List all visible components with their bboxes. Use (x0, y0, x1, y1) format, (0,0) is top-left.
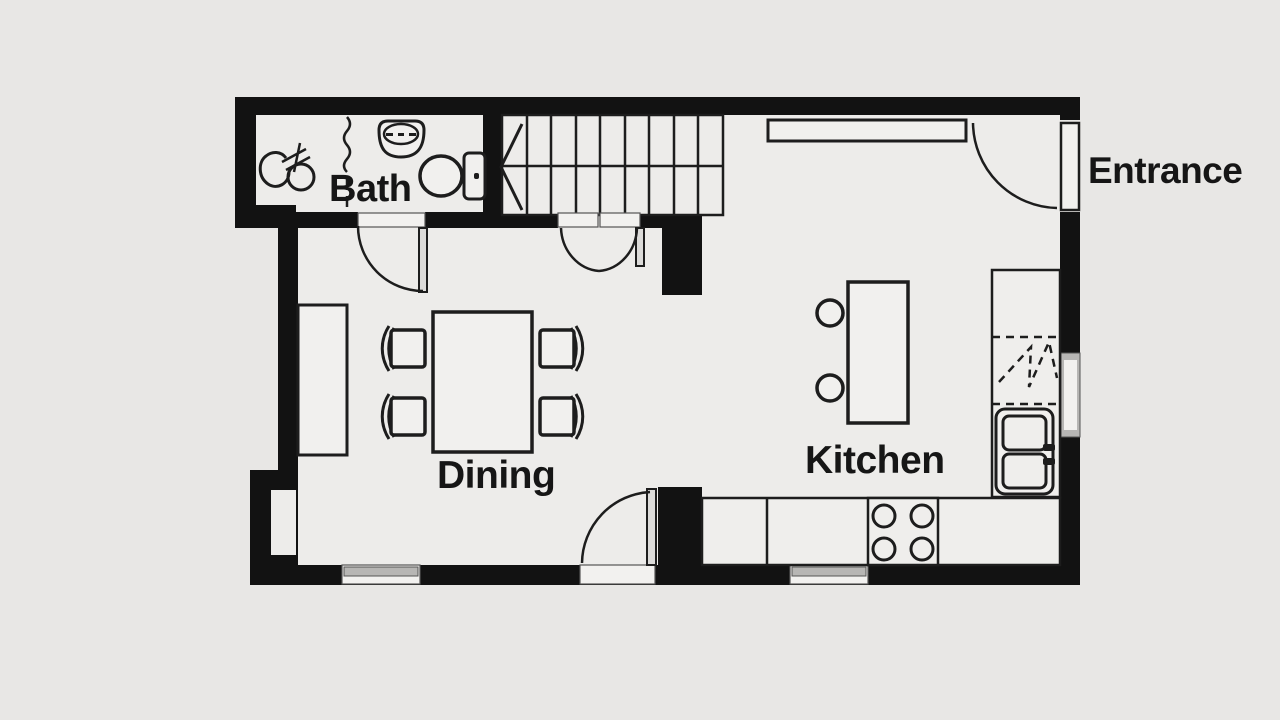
wall-shelf (768, 120, 966, 141)
stool (817, 300, 843, 326)
kitchen-island (848, 282, 908, 423)
sink-icon (379, 121, 424, 157)
entrance-label: Entrance (1088, 152, 1242, 189)
sideboard (298, 305, 347, 455)
stool (817, 375, 843, 401)
wall-pillar (662, 213, 702, 295)
floor-plan-drawing (0, 0, 1280, 720)
wall-stub (658, 487, 702, 565)
window-kitchen (790, 565, 868, 584)
window-dining (342, 565, 420, 584)
bath-label: Bath (329, 170, 411, 208)
staircase (501, 115, 723, 215)
dining-label: Dining (437, 456, 555, 495)
floor-plan: Bath Dining Kitchen Entrance (0, 0, 1280, 720)
stove-icon (868, 498, 938, 565)
kitchen-sink-icon (996, 409, 1055, 494)
kitchen-label: Kitchen (805, 441, 945, 480)
dining-table (433, 312, 532, 452)
window-right-wall (1061, 353, 1080, 437)
toilet-icon (420, 153, 485, 199)
